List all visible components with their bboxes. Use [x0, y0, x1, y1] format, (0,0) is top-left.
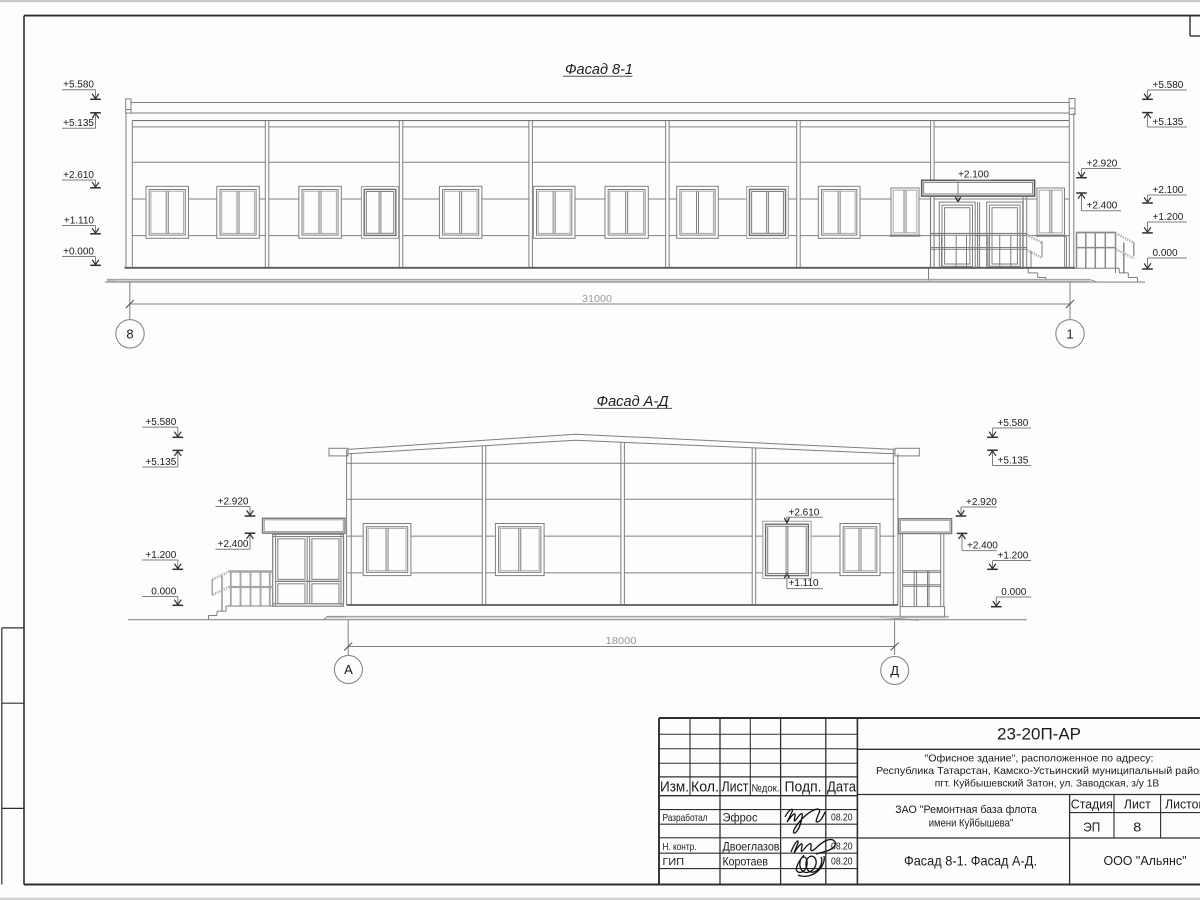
- svg-text:ГИП: ГИП: [663, 856, 685, 868]
- svg-text:8: 8: [1133, 820, 1141, 835]
- svg-text:Изм.: Изм.: [660, 779, 689, 795]
- svg-text:23-20П-АР: 23-20П-АР: [997, 725, 1081, 744]
- svg-text:18000: 18000: [606, 636, 637, 647]
- svg-text:Коротаев: Коротаев: [723, 854, 769, 868]
- svg-text:Республика Татарстан, Камско-У: Республика Татарстан, Камско-Устьинский …: [876, 765, 1200, 777]
- svg-text:ЭП: ЭП: [1083, 820, 1100, 835]
- svg-text:№док.: №док.: [752, 783, 780, 795]
- svg-text:+5.135: +5.135: [998, 455, 1029, 466]
- svg-text:Д: Д: [890, 663, 899, 678]
- svg-text:0.000: 0.000: [1153, 248, 1178, 259]
- svg-text:Лист: Лист: [722, 779, 749, 795]
- svg-text:0.000: 0.000: [1001, 587, 1026, 598]
- svg-text:+5.580: +5.580: [998, 418, 1029, 429]
- svg-text:пгт. Куйбышевский Затон, ул. З: пгт. Куйбышевский Затон, ул. Заводская, …: [935, 778, 1160, 790]
- svg-text:+0.000: +0.000: [63, 246, 94, 257]
- svg-text:Двоеглазов: Двоеглазов: [723, 839, 780, 853]
- svg-text:+1.200: +1.200: [145, 550, 176, 561]
- svg-text:Фасад А-Д: Фасад А-Д: [597, 394, 669, 410]
- svg-text:+2.610: +2.610: [63, 170, 94, 181]
- svg-text:Стадия: Стадия: [1071, 797, 1113, 812]
- svg-text:1: 1: [1066, 326, 1073, 341]
- svg-text:+2.400: +2.400: [967, 540, 998, 551]
- svg-text:+2.920: +2.920: [218, 496, 249, 507]
- svg-text:Разработал: Разработал: [663, 812, 708, 824]
- svg-text:+2.400: +2.400: [1087, 201, 1118, 212]
- svg-text:+5.135: +5.135: [1153, 117, 1184, 128]
- svg-text:Фасад 8-1. Фасад А-Д.: Фасад 8-1. Фасад А-Д.: [904, 852, 1037, 868]
- svg-text:+2.400: +2.400: [218, 539, 249, 550]
- svg-text:Лист: Лист: [1124, 797, 1151, 812]
- svg-text:+2.100: +2.100: [1153, 185, 1184, 196]
- svg-text:+5.135: +5.135: [63, 118, 94, 129]
- svg-text:8: 8: [126, 326, 133, 341]
- svg-text:Н. контр.: Н. контр.: [663, 841, 697, 853]
- svg-text:Листов: Листов: [1165, 797, 1200, 812]
- svg-text:Дата: Дата: [827, 779, 857, 795]
- svg-text:+2.920: +2.920: [1087, 158, 1118, 169]
- svg-text:"Офисное здание", расположенно: "Офисное здание", расположенное по адрес…: [925, 752, 1154, 764]
- svg-text:+5.135: +5.135: [145, 457, 176, 468]
- svg-text:Эфрос: Эфрос: [723, 810, 758, 824]
- svg-text:+1.110: +1.110: [64, 215, 95, 226]
- svg-text:+2.610: +2.610: [789, 507, 820, 518]
- svg-text:ООО "Альянс": ООО "Альянс": [1104, 853, 1187, 868]
- svg-text:+5.580: +5.580: [145, 417, 176, 428]
- svg-text:+1.200: +1.200: [1153, 212, 1184, 223]
- svg-text:08.20: 08.20: [831, 856, 853, 868]
- svg-text:Фасад 8-1: Фасад 8-1: [565, 62, 633, 78]
- svg-text:0.000: 0.000: [151, 586, 176, 597]
- svg-text:31000: 31000: [582, 294, 612, 305]
- svg-text:+2.920: +2.920: [966, 497, 997, 508]
- svg-text:+2.100: +2.100: [958, 169, 989, 180]
- svg-text:+5.580: +5.580: [1153, 80, 1184, 91]
- svg-text:Кол.: Кол.: [691, 779, 719, 795]
- svg-text:+5.580: +5.580: [63, 80, 94, 91]
- svg-text:Подп.: Подп.: [785, 779, 822, 795]
- svg-text:имени Куйбышева": имени Куйбышева": [929, 817, 1014, 829]
- svg-text:08.20: 08.20: [831, 812, 853, 824]
- svg-text:А: А: [344, 662, 353, 677]
- svg-text:+1.200: +1.200: [998, 550, 1029, 561]
- svg-text:+1.110: +1.110: [789, 578, 820, 589]
- svg-text:ЗАО "Ремонтная база флота: ЗАО "Ремонтная база флота: [895, 804, 1037, 816]
